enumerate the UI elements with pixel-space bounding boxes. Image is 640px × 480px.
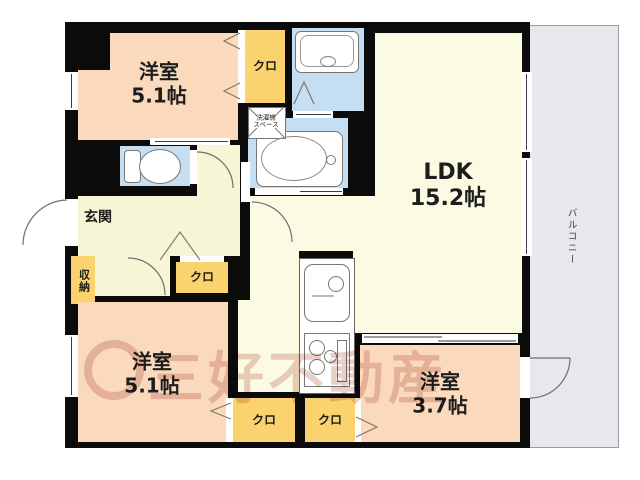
sliding-door-icon xyxy=(255,188,343,195)
burner-icon xyxy=(309,359,325,375)
closet-br-label: クロ xyxy=(318,413,342,427)
closet-top-door-track xyxy=(238,30,245,103)
sliding-door-icon xyxy=(362,334,518,343)
corridor-upper xyxy=(197,145,240,196)
balcony-label: バルコニー xyxy=(565,208,576,266)
ldk-label: LDK 15.2帖 xyxy=(410,160,486,212)
floor-plan: 洋室 5.1帖 LDK 15.2帖 洋室 5.1帖 洋室 3.7帖 玄関 クロ … xyxy=(0,0,640,480)
corridor-lower xyxy=(95,256,170,296)
ldk-name: LDK xyxy=(410,160,486,186)
sliding-door-icon xyxy=(293,111,333,118)
ldk-door-opening xyxy=(241,162,250,202)
burner-icon xyxy=(324,350,337,363)
closet-bl-label: クロ xyxy=(252,413,276,427)
ldk-size: 15.2帖 xyxy=(410,186,486,212)
entrance-label: 玄関 xyxy=(84,210,112,227)
washer-space-label: 洗濯機 スペース xyxy=(253,115,278,130)
closet-bl-door-track xyxy=(226,398,233,442)
bedroom-2-label: 洋室 5.1帖 xyxy=(124,350,179,397)
sink-drain-icon xyxy=(328,276,344,292)
closet-mid-label: クロ xyxy=(190,270,214,284)
bedroom-3-name: 洋室 xyxy=(412,370,467,394)
bedroom-3-size: 3.7帖 xyxy=(412,394,467,418)
window-icon xyxy=(521,158,532,256)
burner-icon xyxy=(309,340,325,356)
bedroom-2-size: 5.1帖 xyxy=(124,374,179,398)
wall-corner-block xyxy=(65,22,110,70)
window-icon xyxy=(65,335,78,397)
grill-icon xyxy=(337,340,347,382)
closet-br-door-track xyxy=(355,398,361,442)
closet-mid-door-track xyxy=(180,256,224,262)
toilet-icon xyxy=(139,149,181,184)
bedroom-2-name: 洋室 xyxy=(124,350,179,374)
door-arc-icon xyxy=(23,200,67,245)
window-icon xyxy=(65,72,78,110)
storage-label: 収納 xyxy=(77,269,90,293)
toilet-door-opening xyxy=(190,150,197,184)
bedroom-1-label: 洋室 5.1帖 xyxy=(131,60,186,107)
kitchen-sink-icon xyxy=(304,264,350,322)
bedroom-1-name: 洋室 xyxy=(131,60,186,84)
washbasin-icon xyxy=(320,56,336,67)
bathtub-basin-icon xyxy=(261,136,327,181)
bath-faucet-icon xyxy=(326,155,336,165)
bedroom-3-label: 洋室 3.7帖 xyxy=(412,370,467,417)
bedroom-1-size: 5.1帖 xyxy=(131,84,186,108)
window-icon xyxy=(521,72,532,152)
balcony-door-opening xyxy=(520,357,530,398)
entrance-door-opening xyxy=(65,199,78,246)
closet-top-label: クロ xyxy=(253,59,277,73)
sliding-door-icon xyxy=(150,138,230,145)
